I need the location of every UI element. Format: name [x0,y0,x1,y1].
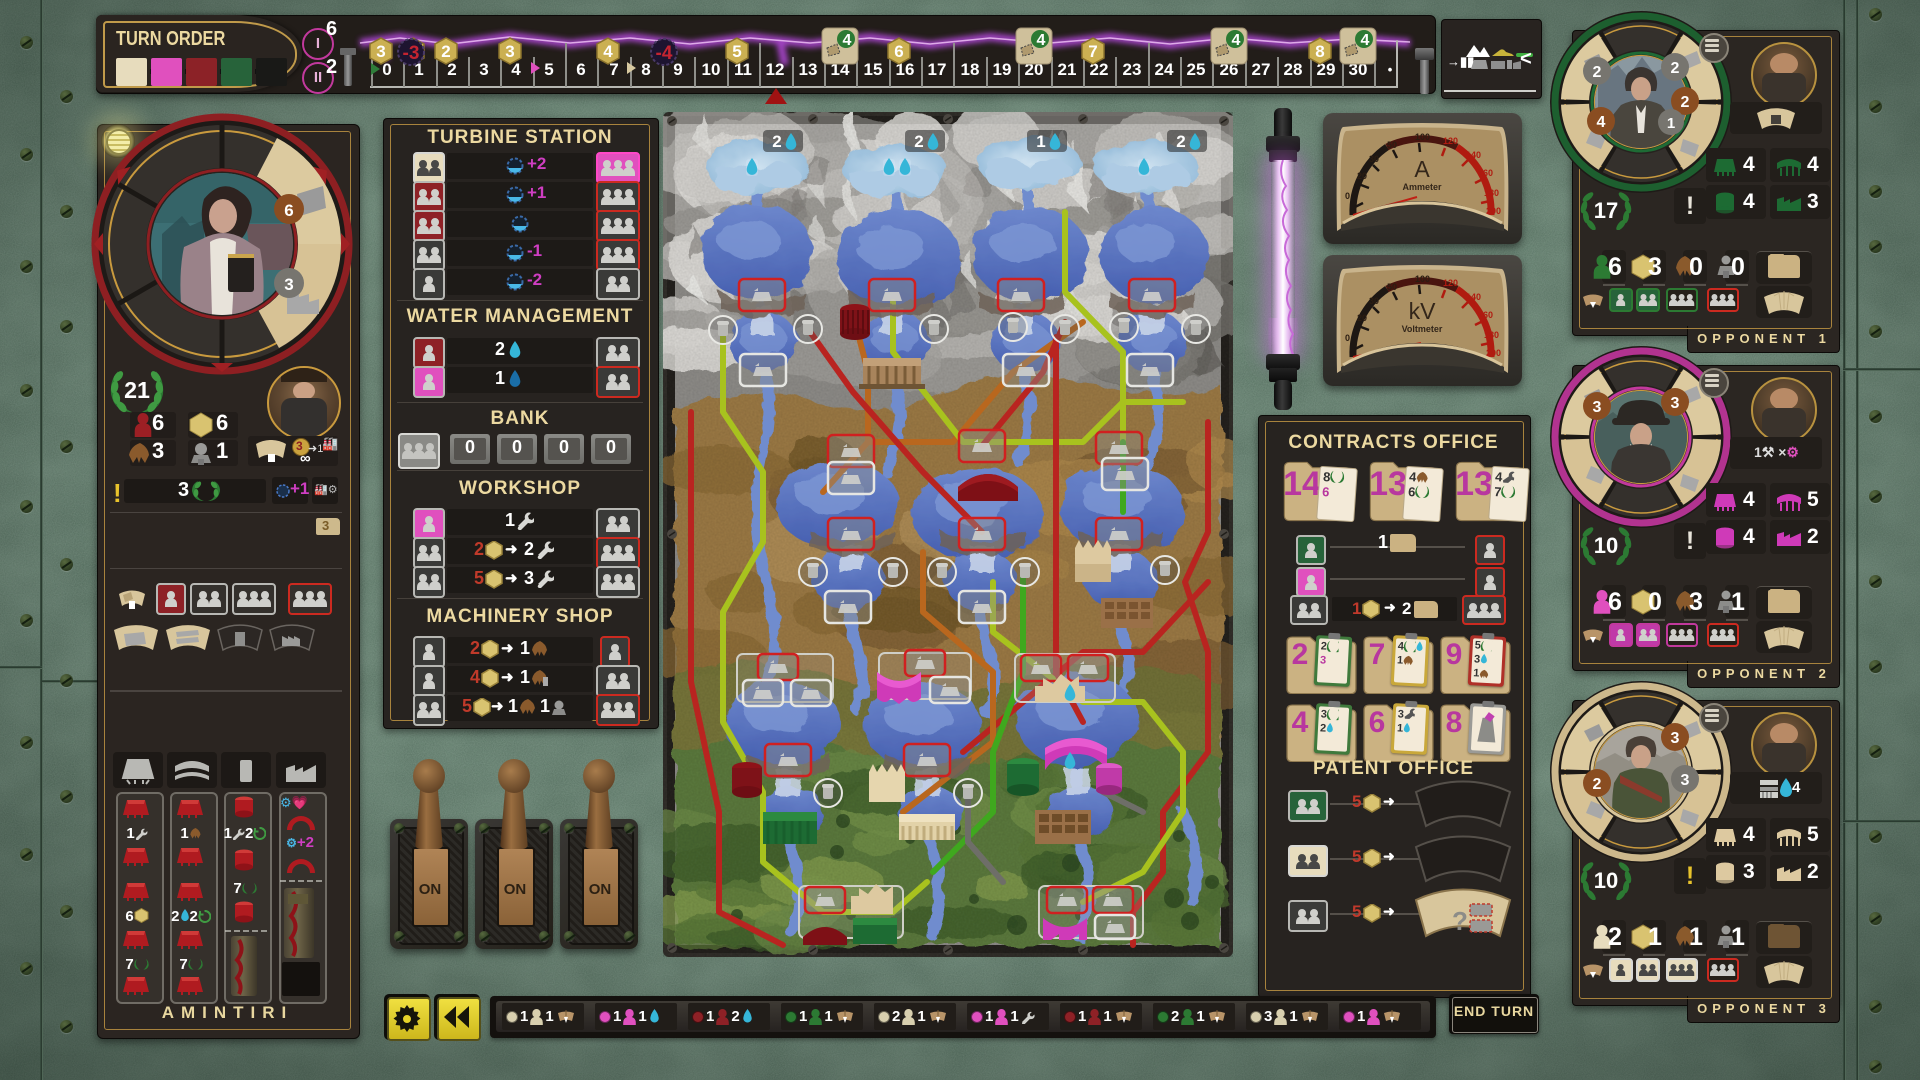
svg-text:2: 2 [441,42,450,61]
svg-text:4: 4 [1037,32,1046,49]
svg-text:140: 140 [1466,292,1481,302]
svg-text:21: 21 [124,377,150,403]
svg-text:100: 100 [1415,132,1430,142]
svg-text:2: 2 [1681,94,1690,111]
svg-text:3: 3 [1681,772,1690,789]
svg-text:3: 3 [505,42,514,61]
svg-text:Voltmeter: Voltmeter [1402,324,1443,334]
svg-text:kV: kV [1409,298,1437,324]
svg-text:6: 6 [894,42,903,61]
svg-text:100: 100 [1415,274,1430,284]
svg-text:-4: -4 [656,43,673,64]
svg-text:50: 50 [1387,282,1397,292]
svg-text:180: 180 [1484,188,1499,198]
svg-text:20: 20 [1357,171,1367,181]
svg-text:5: 5 [732,42,741,61]
svg-text:2: 2 [1176,132,1185,151]
svg-text:7: 7 [1088,42,1097,61]
svg-text:1: 1 [1036,132,1045,151]
svg-text:3: 3 [1671,395,1680,412]
svg-text:3: 3 [1671,730,1680,747]
svg-text:10: 10 [1594,533,1618,558]
svg-text:3: 3 [1593,399,1602,416]
svg-text:Ammeter: Ammeter [1402,182,1442,192]
svg-text:-3: -3 [403,43,420,64]
svg-text:20: 20 [1357,313,1367,323]
svg-text:4: 4 [843,32,852,49]
svg-text:160: 160 [1478,168,1493,178]
svg-text:120: 120 [1443,278,1458,288]
svg-text:160: 160 [1478,310,1493,320]
svg-text:4: 4 [1232,32,1241,49]
svg-text:2: 2 [772,132,781,151]
svg-text:2: 2 [1671,60,1680,77]
svg-text:4: 4 [1361,32,1370,49]
svg-text:4: 4 [1597,114,1606,131]
svg-text:1: 1 [1667,115,1675,132]
svg-text:4: 4 [603,42,613,61]
svg-text:3: 3 [376,42,385,61]
svg-text:180: 180 [1484,330,1499,340]
svg-text:17: 17 [1594,198,1618,223]
svg-text:30: 30 [1369,154,1379,164]
svg-text:6: 6 [284,201,293,220]
svg-text:120: 120 [1443,136,1458,146]
svg-text:50: 50 [1387,140,1397,150]
svg-text:30: 30 [1369,296,1379,306]
svg-text:2: 2 [1593,776,1602,793]
svg-text:0: 0 [1345,191,1350,201]
svg-text:2: 2 [914,132,923,151]
svg-text:?: ? [1452,906,1468,936]
svg-text:3: 3 [284,275,293,294]
svg-text:10: 10 [1594,868,1618,893]
svg-text:140: 140 [1466,150,1481,160]
svg-text:0: 0 [1345,333,1350,343]
svg-text:8: 8 [1315,42,1324,61]
svg-text:A: A [1414,156,1430,182]
svg-text:2: 2 [1593,64,1602,81]
